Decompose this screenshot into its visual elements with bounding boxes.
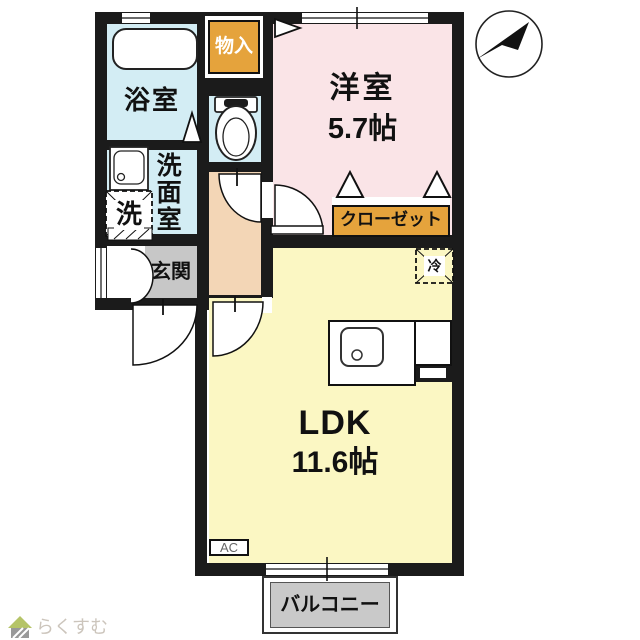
- ldk-door-arc: [213, 296, 263, 356]
- balcony-label: バルコニー: [270, 582, 390, 628]
- house-logo-icon: [8, 616, 32, 638]
- western-room-label: 洋室: [273, 72, 452, 106]
- north-compass-icon: [476, 11, 542, 77]
- storage-label: 物入: [208, 20, 260, 74]
- refrigerator-label: 冷: [424, 256, 445, 276]
- western-room-size: 5.7帖: [273, 112, 452, 146]
- bathroom-door-triangle: [183, 113, 201, 142]
- window-entrance-left: [96, 248, 106, 298]
- toilet-door-arc: [219, 168, 261, 222]
- kitchen-drain-icon: [352, 350, 362, 360]
- toilet-icon: [215, 97, 257, 160]
- window-western-top: [302, 7, 428, 29]
- floorplan: 浴室 物入 洋室 5.7帖 洗面室 洗 玄関 クローゼット 冷 LDK 11.6…: [0, 0, 640, 640]
- ldk-size: 11.6帖: [240, 446, 430, 480]
- closet-label: クローゼット: [332, 205, 450, 235]
- front-door-arc: [133, 299, 197, 365]
- western-room-door-flag: [275, 19, 300, 37]
- entrance-label: 玄関: [145, 246, 197, 298]
- bathroom-label: 浴室: [107, 86, 197, 116]
- window-bathroom-top: [122, 13, 150, 23]
- washing-machine-label: 洗: [114, 200, 144, 230]
- washroom-label: 洗面室: [152, 147, 182, 237]
- ac-label: AC: [209, 539, 249, 556]
- logo-text: らくすむ: [36, 615, 126, 639]
- closet-door-triangle-left: [337, 172, 363, 197]
- closet-door-triangle-right: [424, 172, 450, 197]
- window-balcony: [266, 557, 388, 581]
- ldk-label: LDK: [240, 406, 430, 442]
- western-room-door-arc: [262, 182, 323, 234]
- sink-icon: [110, 147, 148, 190]
